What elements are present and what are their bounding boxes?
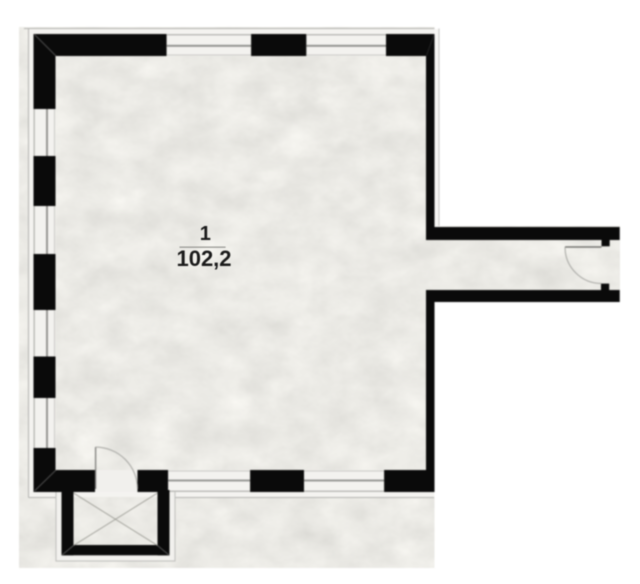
svg-text:1: 1 [200, 223, 211, 245]
svg-text:102,2: 102,2 [176, 246, 231, 271]
